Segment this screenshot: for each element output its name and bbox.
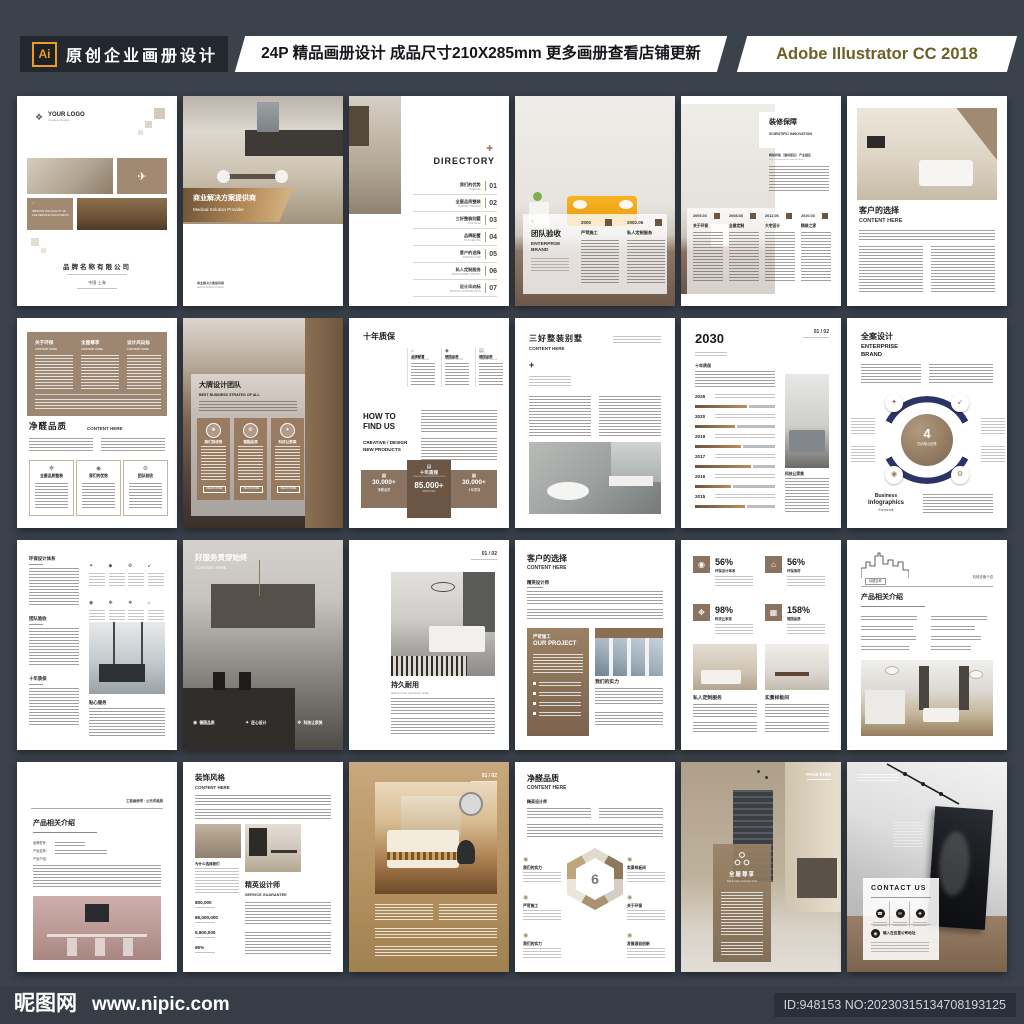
mini-icon: ↙ <box>148 563 152 569</box>
body-lines <box>195 809 331 819</box>
page-number: 01 / 02 <box>482 552 497 558</box>
spec-lines-left <box>861 646 909 652</box>
card-label: 我们的优势 <box>197 440 230 445</box>
stat-value: 30.000+ <box>451 479 497 486</box>
pair-circles-icon: ◉ <box>523 857 528 863</box>
hex-item-lines <box>523 948 561 960</box>
mini-feature: ⚙ <box>128 554 146 587</box>
vanity <box>609 476 653 486</box>
black-cabinet <box>249 828 267 856</box>
header-subtitle-band: 24P 精品画册设计 成品尺寸210X285mm 更多画册查看店铺更新 <box>235 36 727 72</box>
header-subtitle: 24P 精品画册设计 成品尺寸210X285mm 更多画册查看店铺更新 <box>240 36 722 72</box>
side-caption <box>851 446 875 462</box>
luxury-b bedroom-photo <box>375 782 497 894</box>
foot-infographics: Infographics <box>861 500 911 507</box>
page-10-villa: 三好整装别墅 CONTENT HERE + <box>515 318 675 528</box>
stat-sub: CREATIVE / DESIGN NEW PRODUCTS <box>407 476 451 478</box>
window-mullion <box>113 622 115 664</box>
mini-feature: ✦ <box>89 554 107 587</box>
milestone-year: 2000 <box>581 220 591 225</box>
page-title-cn: 三好整装别墅 <box>529 334 583 343</box>
page-title-cn: 持久耐用 <box>391 682 419 690</box>
range <box>797 858 837 898</box>
page-title-en: CONTENT HERE <box>527 786 566 792</box>
badge: ✦ 匠心设计 <box>245 720 266 726</box>
mini-icon: ✦ <box>89 563 93 569</box>
rule <box>29 624 43 625</box>
cover-logo-sub: Creative Design <box>48 119 69 122</box>
page-number-note <box>807 779 831 782</box>
card-circle-icon: ⚙ <box>243 423 258 438</box>
how-to-line2: FIND US <box>363 422 395 431</box>
timeline-bar <box>695 505 745 508</box>
banner-title-en: Medical Solution Provider <box>193 207 244 212</box>
company-subtitle-lines <box>67 274 127 277</box>
top-left-caption <box>857 774 899 781</box>
card-label: 德国品质 <box>234 440 267 445</box>
side-photo <box>349 96 401 214</box>
skyline-label: 标题名称 <box>865 578 886 585</box>
directory-item: 客户的选择SERVICE FLOW05 <box>413 246 497 263</box>
body-column <box>101 438 165 452</box>
bedroom-photo <box>857 108 997 200</box>
bed-runner <box>387 852 459 860</box>
section-title: 团队验收 <box>29 616 47 621</box>
mini-feature: ↙ <box>148 554 166 587</box>
stat-unit: SERVICES <box>407 490 451 493</box>
phone-icon: ☎ <box>876 909 885 918</box>
stat-sub <box>195 952 215 955</box>
center-circle: 4 四大核心优势 <box>901 414 953 466</box>
livingroom-photo <box>391 572 495 676</box>
milestone-label: 严苛施工 <box>581 231 598 236</box>
stat-label: 德国品质 <box>787 618 801 622</box>
center-number: 4 <box>901 426 953 441</box>
center-label: 四大核心优势 <box>901 441 953 446</box>
timeline-note <box>715 474 775 480</box>
section-lines <box>29 628 79 666</box>
page-title: 十年质保 <box>363 332 395 341</box>
spec-label: 产品介绍： <box>33 858 49 862</box>
milestone-year: 2020.08 <box>801 214 815 218</box>
mini-icon: ❖ <box>128 600 132 606</box>
body-lines <box>527 824 663 838</box>
bedroom-photo <box>785 374 829 468</box>
milestone-arrow <box>655 219 662 226</box>
timeline-year: 2015 <box>695 494 705 499</box>
page-15-durable: 01 / 02 持久耐用 Half an hour economic circl… <box>349 540 509 750</box>
timeline-row: 2017 <box>695 454 779 474</box>
milestone-text <box>581 240 619 284</box>
bullet-row <box>533 682 583 686</box>
spec-lines-left <box>861 626 913 632</box>
mini-lines <box>148 573 164 587</box>
page-23-kitchen-full: PAGE 01/02 全屋尊享 Half an hour economic ci… <box>681 762 841 972</box>
body-column <box>929 364 993 384</box>
directory-item: 品牌配置OUR SERVICE04 <box>413 229 497 246</box>
rule <box>31 808 163 809</box>
column-lines <box>765 722 829 734</box>
column-label: 实景样板间 <box>765 696 789 702</box>
spec-label: 品牌型号： <box>33 842 49 846</box>
directory-title: DIRECTORY <box>433 156 495 166</box>
page-title-cn: 团队验收 <box>531 230 561 239</box>
footer-site-name: 昵图网 <box>14 992 77 1016</box>
rule <box>29 684 43 685</box>
mini-icon: ◉ <box>89 600 93 606</box>
hex-item: ◉ 我们的实力 <box>523 924 563 960</box>
footer-id-box: ID:948153 NO:20230315134708193125 <box>774 993 1016 1017</box>
ai-logo-icon: Ai <box>32 42 57 67</box>
page-title: 产品相关介绍 <box>33 820 75 828</box>
card-lines <box>275 446 300 480</box>
timeline-rows: 2025 2020 2019 2017 <box>695 394 779 514</box>
range-hood <box>85 904 109 922</box>
page-title-en: BEST BUSINESS STRATEG OF ALL <box>199 393 260 397</box>
feature-label: 全屋品质整装 <box>30 474 73 479</box>
body-column <box>931 246 995 292</box>
page-04-team: ◌ 团队验收 ENTERPRSE BRAND 2000 严苛施工 2002.05… <box>515 96 675 306</box>
body-lines <box>195 795 331 805</box>
page-24-back-cover: CONTACT US ☎ ✉ ❖ ◉ 输入在这里公司地址 <box>847 762 1007 972</box>
timeline-bar-rest <box>743 445 775 448</box>
intro-lines <box>531 258 569 272</box>
rule <box>871 924 931 925</box>
designer-card: ⚙ 德国品质 READ MORE <box>234 418 267 500</box>
body-lines <box>421 438 497 460</box>
stat-lines <box>787 624 825 636</box>
bed <box>789 430 825 452</box>
stat-block-right: ▦ 30.000+ 十年质保 <box>451 470 497 508</box>
place-subtitle-line <box>77 288 117 291</box>
intro-lines <box>199 401 297 413</box>
col-lines <box>81 355 119 389</box>
page-title-cn: 装修保障 <box>769 119 797 127</box>
hex-item: ◉ 发展源自创新 <box>627 924 667 960</box>
pair-circles-icon: ◉ <box>627 857 632 863</box>
column-lines <box>693 704 757 718</box>
stool <box>123 938 133 956</box>
timeline-bar <box>695 425 735 428</box>
taupe-block: 关于环保 CONTENT HERE 全屋尊享 CONTENT HERE 设计风向… <box>27 332 167 416</box>
strength-lines <box>595 688 663 706</box>
cover-place: 中国·上海 <box>17 281 177 286</box>
skyline-icon <box>861 552 909 578</box>
header-logo-box: Ai 原创企业画册设计 <box>20 36 228 72</box>
body-lines <box>421 410 497 432</box>
circle-infographic: 4 四大核心优势 ✦ ↙ ◉ ⚙ <box>875 390 979 490</box>
stat-icon-box: ⌂ <box>765 556 782 573</box>
body-column <box>599 808 663 820</box>
stat-value: 95% <box>195 945 204 950</box>
pin-icon: ◉ <box>871 929 880 938</box>
page-08-designers: 大牌设计团队 BEST BUSINESS STRATEG OF ALL ✥ 我们… <box>183 318 343 528</box>
taupe-panel: 全屋尊享 Half an hour economic circle <box>713 844 771 962</box>
side-caption <box>981 446 1005 462</box>
table <box>923 708 959 722</box>
cover-plane-block: ✈ <box>117 158 167 194</box>
section-lines <box>29 568 79 606</box>
mini-feature: ✥ <box>109 591 127 624</box>
page-20-style: 装饰风格 CONTENT HERE 为什么选择我们 800,000 86,000… <box>183 762 343 972</box>
glass-panel: ◌ 团队验收 ENTERPRSE BRAND 2000 严苛施工 2002.05… <box>523 214 667 294</box>
directory-item: 设计风向标PRODUCT INTRODUCTION07 <box>413 280 497 297</box>
badge-circle-icon: ◌ <box>531 219 535 226</box>
timeline-year: 2020 <box>695 414 705 419</box>
mail-icon: ✉ <box>896 909 905 918</box>
cover-photo-wardrobe <box>77 198 167 230</box>
hexagon-center: 6 <box>576 858 614 900</box>
mini-feature: ◆ <box>109 554 127 587</box>
column-label: 私人定制服务 <box>693 696 722 702</box>
backsplash <box>245 130 343 156</box>
timeline-note <box>715 414 775 420</box>
bar-stool <box>213 672 225 690</box>
body-column <box>529 396 591 436</box>
page-title-cn: 大牌设计团队 <box>199 382 241 390</box>
bed <box>919 160 973 186</box>
brochure-grid: ❖ YOUR LOGO Creative Design ✈ ◌ IMPROVE … <box>17 96 1007 972</box>
plus-mark: + <box>529 360 534 370</box>
stat-percent: 158% <box>787 605 810 615</box>
designer-card: ✦ 科技让家美 READ MORE <box>271 418 304 500</box>
gear-icon: ⚙ <box>951 466 969 484</box>
stat-label: 十年质保 <box>451 487 497 492</box>
mosaic-decoration <box>145 121 152 128</box>
designer-card: ✥ 我们的优势 READ MORE <box>197 418 230 500</box>
title-box: 装修保障 SCIENTIFIC INNOVATION <box>759 112 835 148</box>
page-title-en: ENTERPRSE BRAND <box>531 242 573 253</box>
cabinets <box>865 690 905 724</box>
mini-feature: ◉ <box>89 591 107 624</box>
interior-photo <box>693 644 757 690</box>
timeline-year: 2019 <box>695 434 705 439</box>
milestone-year: 2008.08 <box>729 214 743 218</box>
page-title-en: CONTENT HERE <box>859 218 902 224</box>
stat-icon-box: ◉ <box>693 556 710 573</box>
header-software-band: Adobe Illustrator CC 2018 <box>737 36 1017 72</box>
milestone-text <box>729 232 759 282</box>
card-title-en: OUR PROJECT <box>533 641 576 648</box>
stat-sub <box>195 907 215 910</box>
stat-value: 5,800,000 <box>195 930 215 935</box>
striped-rug <box>391 656 467 676</box>
mosaic-decoration <box>154 108 165 119</box>
wardrobe <box>305 318 343 528</box>
page-12-infographic: 全案设计 ENTERPRISE BRAND 4 四大核心优势 ✦ ↙ ◉ ⚙ B… <box>847 318 1007 528</box>
bottom-lines <box>89 708 165 736</box>
upper-cabinet <box>211 584 315 628</box>
leaf-icon: ◌ <box>32 201 34 206</box>
page-21-luxury: 01 / 02 <box>349 762 509 972</box>
pillow <box>573 200 587 209</box>
sub-label: 精英设计师 <box>527 800 547 805</box>
timeline-bar <box>695 445 741 448</box>
page-16-project: 客户的选择 CONTENT HERE 精英设计师 严苛施工 OUR PROJEC… <box>515 540 675 750</box>
paper-plane-icon: ✈ <box>137 171 146 183</box>
why-lines <box>195 868 239 894</box>
page-number-note <box>803 337 829 340</box>
timeline-bar <box>695 465 751 468</box>
elephant-artwork <box>937 831 971 897</box>
cover-tagline-block: ◌ IMPROVE THE QUALITY OF LIFE SERVICE FO… <box>27 198 73 230</box>
bottom-label: 贴心服务 <box>89 700 107 705</box>
strength-label: 我们的实力 <box>595 680 619 686</box>
read-more-button: READ MORE <box>203 486 226 493</box>
stat-percent: 56% <box>715 557 733 567</box>
milestone-year: 2005.03 <box>693 214 707 218</box>
sofa <box>429 626 485 652</box>
banner-title-cn: 商业解决方案提供商 <box>193 195 256 203</box>
side-caption <box>981 418 1005 434</box>
spec-label: 产品名称： <box>33 850 49 854</box>
hexagon-infographic: 6 <box>567 848 623 910</box>
badge-label: 德国品质 <box>199 721 214 726</box>
hex-item-lines <box>627 948 665 960</box>
col-title: 全屋尊享 <box>81 340 99 345</box>
timeline-bar-rest <box>749 405 775 408</box>
corner-note <box>613 336 661 344</box>
interior-photo <box>765 644 829 690</box>
title-underline <box>861 606 925 607</box>
section-lines <box>695 371 775 387</box>
page-09-warranty: 十年质保 ⌂ 品牌配置 CREATIVE / DESIGN ◆ 德国品质 CRE… <box>349 318 509 528</box>
side-label: 科技让家美 <box>785 472 804 476</box>
directory-plus-icon: ✚ <box>486 144 493 153</box>
page-number: PAGE 01/02 <box>806 772 831 777</box>
rule <box>527 587 543 588</box>
why-label: 为什么选择我们 <box>195 862 220 866</box>
how-to-line1: HOW TO <box>363 412 396 421</box>
architecture-photo <box>595 628 663 676</box>
col-sub: CONTENT HERE <box>81 348 103 351</box>
corner-right-label: 机械设备介绍 <box>973 576 993 580</box>
spec-value <box>55 842 85 846</box>
header-software: Adobe Illustrator CC 2018 <box>742 36 1012 72</box>
foot-lines <box>923 494 993 514</box>
hex-item-lines <box>627 910 665 922</box>
stat-label: 环保设计体系 <box>715 570 735 574</box>
stat-sub <box>195 922 215 925</box>
hex-item: ◉ 严苛施工 <box>523 886 563 922</box>
page-title-en: CONTENT HERE <box>529 346 565 351</box>
black-chair <box>457 840 475 864</box>
dining-table <box>223 174 283 179</box>
designer-title-en: SERVICE GUARANTEE <box>245 893 287 897</box>
feature-icon: ◆ <box>77 465 120 472</box>
bathroom-photo <box>529 442 661 514</box>
page-03-directory: ✚ DIRECTORY 我们的优势PREFACE01 全屋品质整装COMPANY… <box>349 96 509 306</box>
icon-grid: ✦ ◆ ⚙ ↙ ◉ ✥ ❖ ⌂ <box>89 554 165 624</box>
timeline-note <box>715 494 775 500</box>
bar-stool <box>239 672 251 690</box>
spec-lines-right <box>931 626 975 632</box>
page-title-cn: 全案设计 <box>861 332 893 341</box>
badge: ◉ 德国品质 <box>193 720 215 726</box>
feature-label: 团队验收 <box>124 474 167 479</box>
milestone-arrow <box>822 213 828 219</box>
milestone-year: 2002.05 <box>627 220 643 225</box>
directory-item: 三好整装别墅OUR TEAM03 <box>413 212 497 229</box>
timeline-year: 2016 <box>695 474 705 479</box>
footer-lines <box>35 399 161 411</box>
footer-bar: 昵图网 www.nipic.com ID:948153 NO:202303151… <box>0 986 1024 1024</box>
col-title: 关于环保 <box>35 340 53 345</box>
mini-lines <box>89 573 105 587</box>
cover-photo-livingroom <box>27 158 113 194</box>
footer-id-text: ID:948153 NO:20230315134708193125 <box>784 998 1006 1012</box>
hex-item: ◉ 实景样板间 <box>627 848 667 884</box>
page-number-note <box>471 559 497 562</box>
milestone-label: 大宅设计 <box>765 224 780 228</box>
stool <box>67 938 77 956</box>
card-label: 科技让家美 <box>271 440 304 445</box>
body-column <box>29 438 93 452</box>
panel-lines <box>721 942 763 956</box>
col-sub: CONTENT HERE <box>127 348 149 351</box>
stat-block-center: ▤ 十年质保 CREATIVE / DESIGN NEW PRODUCTS 85… <box>407 460 451 518</box>
directory-item: 全屋品质整装COMPANY PROFILE02 <box>413 195 497 212</box>
stat-value: 30.000+ <box>361 479 407 486</box>
page-19-product-intro: 工装画册带 · 公元风格展 产品相关介绍 品牌型号： 产品名称： 产品介绍： <box>17 762 177 972</box>
timeline-bar-rest <box>737 425 775 428</box>
page-14-service: 好服务贯穿始终 CONTENT HERE ◉ 德国品质 ✦ 匠心设计 ❖ 科技让… <box>183 540 343 750</box>
badge-circle-icon: ◉ <box>193 720 197 726</box>
hex-item-lines <box>523 910 561 922</box>
desk-photo <box>245 824 301 872</box>
page-06-choice: 客户的选择 CONTENT HERE <box>847 96 1007 306</box>
body-column <box>599 396 661 436</box>
footer-site-url: www.nipic.com <box>92 994 230 1016</box>
body-lines <box>391 698 495 714</box>
body-lines <box>527 591 663 605</box>
stat-value: 800,000 <box>195 900 212 905</box>
mosaic-decoration <box>41 248 46 253</box>
foot-business: Business <box>861 494 911 500</box>
stat-sub <box>195 937 215 940</box>
card-lines <box>201 446 226 480</box>
page-title-cn: 净醛品质 <box>527 774 559 783</box>
section-title-cn: 净醛品质 <box>29 422 67 432</box>
pillar <box>645 638 649 676</box>
timeline-bar <box>695 485 731 488</box>
page-title-en2: BRAND <box>861 352 882 359</box>
stat-label: 科技让家美 <box>715 618 732 622</box>
range-hood <box>257 102 279 132</box>
mini-icon: ⚙ <box>128 563 132 569</box>
mosaic-decoration <box>138 130 143 135</box>
body-lines <box>859 230 995 240</box>
cover-tagline: IMPROVE THE QUALITY OF LIFE SERVICE FOR … <box>32 210 70 218</box>
body-lines <box>527 609 663 621</box>
designer-lines <box>245 932 331 956</box>
stat-lines <box>787 576 825 588</box>
page-05-guarantee: 装修保障 SCIENTIFIC INNOVATION 精装样板（通用版区）产业园… <box>681 96 841 306</box>
bed <box>387 830 459 868</box>
feature-lines <box>129 483 162 509</box>
feature-label: 我们的优势 <box>77 474 120 479</box>
bullet-row <box>533 712 583 716</box>
strength-lines <box>595 712 663 726</box>
page-title-en: CONTENT HERE <box>527 566 566 572</box>
hex-item-label: 关于环保 <box>627 904 667 909</box>
page-01-cover: ❖ YOUR LOGO Creative Design ✈ ◌ IMPROVE … <box>17 96 177 306</box>
mosaic-decoration <box>31 238 39 246</box>
products-label: NEW PRODUCTS <box>363 447 401 452</box>
feature-box: ⚙ 团队验收 <box>123 460 168 516</box>
badge: ❖ 科技让家美 <box>297 720 322 726</box>
col-sub: CONTENT HERE <box>35 348 57 351</box>
